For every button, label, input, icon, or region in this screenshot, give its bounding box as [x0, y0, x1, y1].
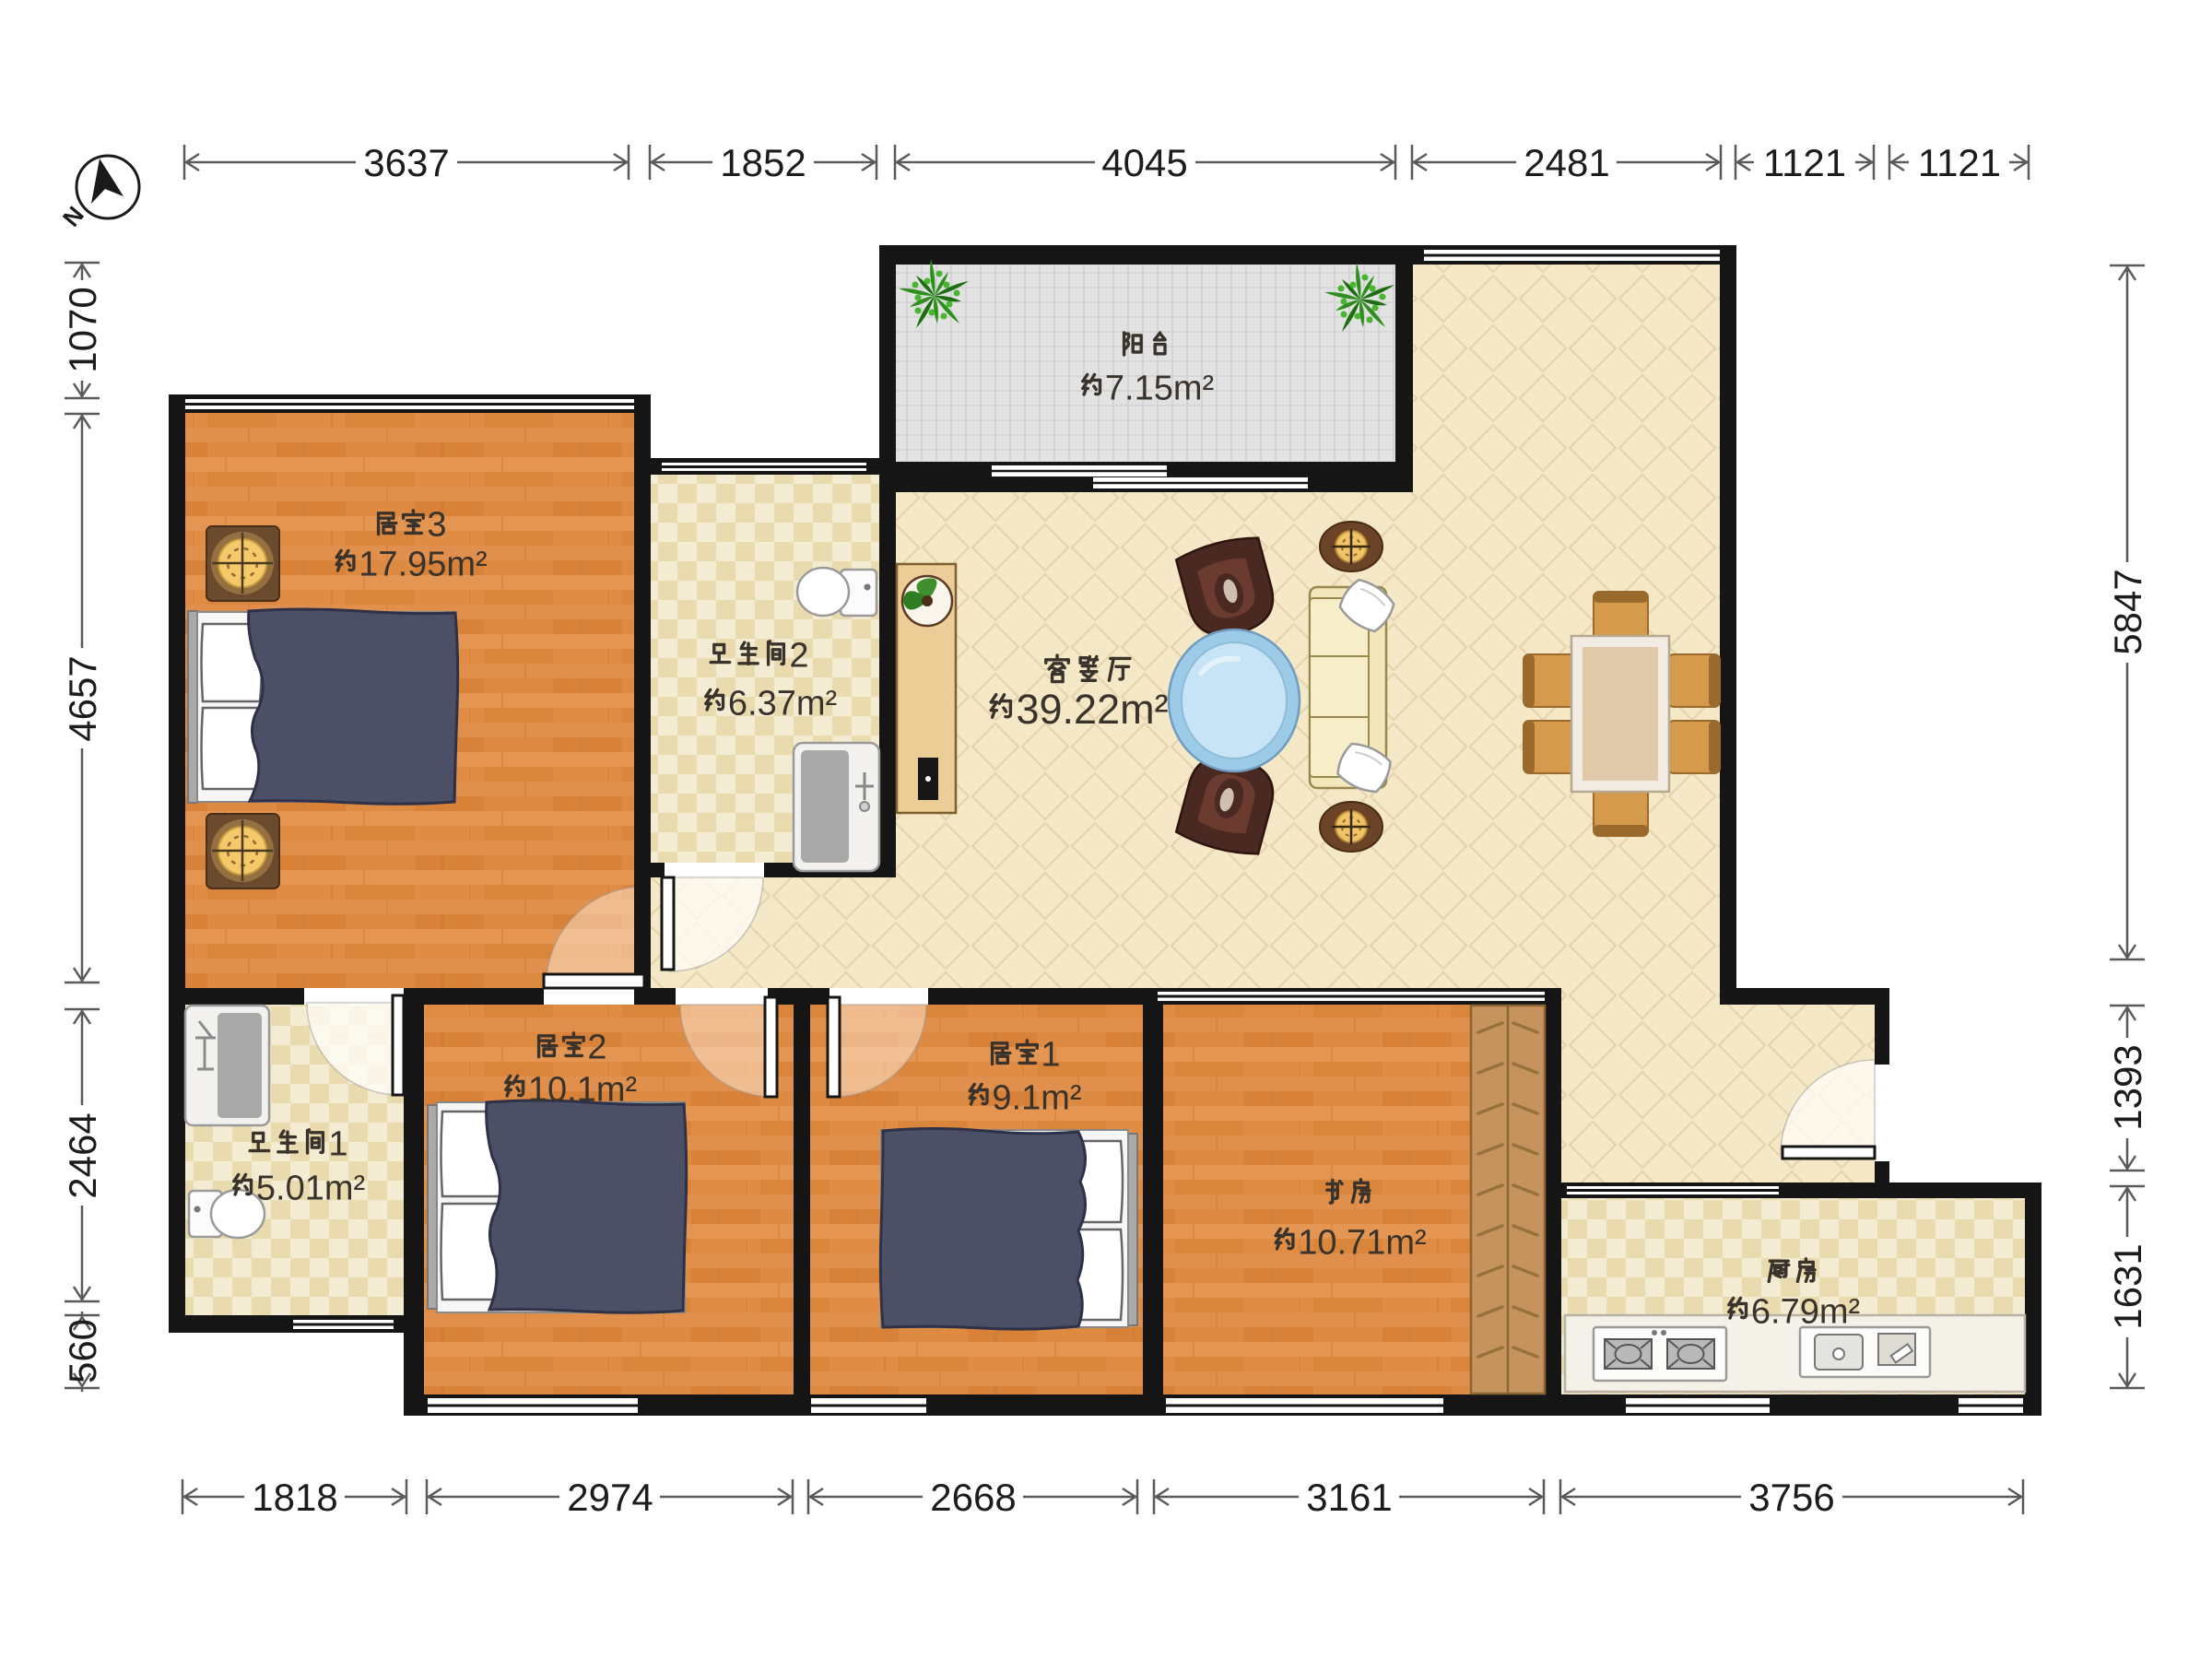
svg-text:2974: 2974	[567, 1476, 653, 1519]
svg-text:3161: 3161	[1306, 1476, 1392, 1519]
svg-text:17.95m²: 17.95m²	[359, 546, 487, 584]
svg-text:2: 2	[789, 637, 808, 676]
svg-text:2481: 2481	[1524, 141, 1609, 184]
svg-text:5.01m²: 5.01m²	[256, 1170, 365, 1208]
svg-text:3756: 3756	[1748, 1476, 1834, 1519]
svg-text:39.22m²: 39.22m²	[1017, 686, 1169, 733]
svg-text:2: 2	[587, 1029, 606, 1067]
svg-text:6.79m²: 6.79m²	[1751, 1293, 1860, 1332]
svg-text:1852: 1852	[720, 141, 806, 184]
svg-text:1393: 1393	[2106, 1044, 2149, 1130]
svg-text:1: 1	[328, 1125, 347, 1164]
svg-text:1121: 1121	[1763, 141, 1846, 184]
svg-text:1631: 1631	[2106, 1243, 2149, 1329]
svg-text:7.15m²: 7.15m²	[1105, 370, 1214, 408]
svg-text:2668: 2668	[930, 1476, 1016, 1519]
svg-text:1121: 1121	[1918, 141, 2001, 184]
svg-text:5847: 5847	[2106, 569, 2149, 654]
svg-text:3637: 3637	[363, 141, 449, 184]
svg-text:3: 3	[427, 506, 446, 545]
svg-text:1818: 1818	[252, 1476, 337, 1519]
svg-text:1070: 1070	[61, 287, 104, 372]
svg-text:2464: 2464	[61, 1112, 104, 1198]
svg-text:4657: 4657	[61, 655, 104, 741]
svg-text:9.1m²: 9.1m²	[992, 1079, 1081, 1118]
svg-text:10.71m²: 10.71m²	[1298, 1224, 1426, 1263]
svg-text:560: 560	[61, 1319, 104, 1383]
svg-text:4045: 4045	[1101, 141, 1187, 184]
svg-text:6.37m²: 6.37m²	[728, 685, 837, 724]
svg-text:10.1m²: 10.1m²	[528, 1071, 637, 1110]
svg-text:1: 1	[1041, 1036, 1060, 1075]
